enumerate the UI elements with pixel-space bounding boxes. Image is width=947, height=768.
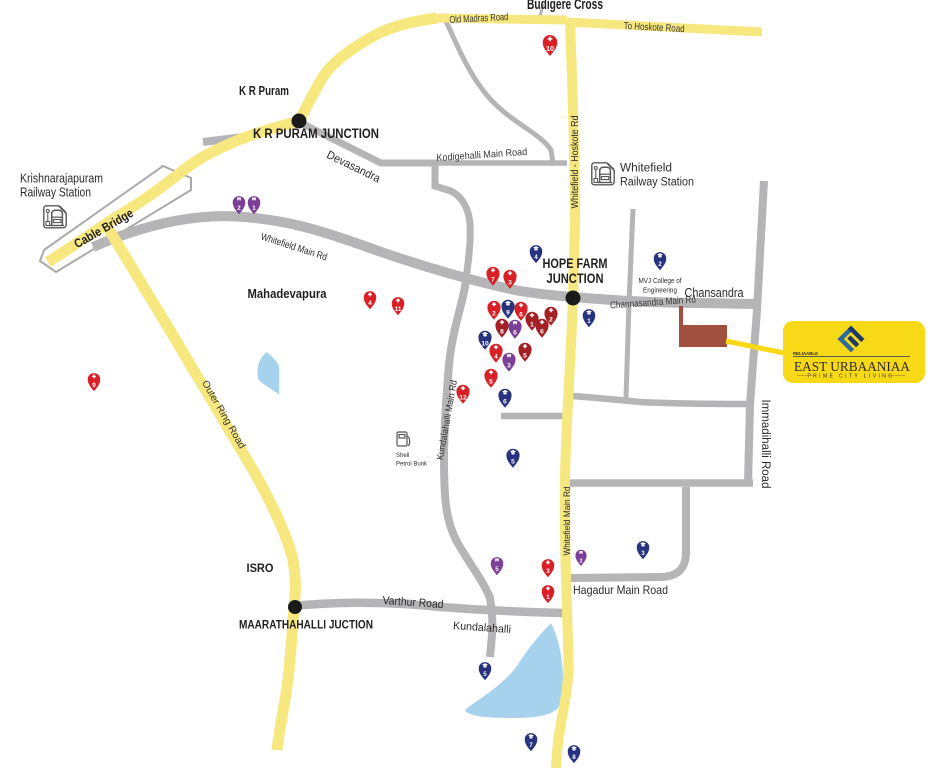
svg-text:3: 3: [546, 568, 550, 575]
svg-text:2: 2: [658, 261, 662, 268]
svg-text:5: 5: [483, 671, 487, 678]
svg-text:Engineering: Engineering: [643, 288, 677, 295]
svg-text:10: 10: [546, 44, 554, 53]
svg-text:4: 4: [534, 254, 538, 261]
svg-text:Petrol Bunk: Petrol Bunk: [396, 462, 428, 468]
svg-text:6: 6: [540, 328, 544, 335]
svg-text:3: 3: [507, 362, 511, 369]
svg-text:5: 5: [489, 378, 493, 385]
svg-text:6: 6: [503, 398, 507, 405]
svg-text:8: 8: [572, 754, 576, 761]
svg-text:6: 6: [519, 311, 523, 318]
svg-text:8: 8: [500, 328, 504, 335]
svg-text:Railway Station: Railway Station: [620, 177, 694, 189]
svg-text:9: 9: [506, 309, 510, 316]
svg-text:11: 11: [395, 306, 402, 313]
svg-text:RELIAABLE: RELIAABLE: [793, 351, 818, 356]
svg-text:K R PURAM JUNCTION: K R PURAM JUNCTION: [253, 126, 379, 141]
svg-text:PRIME CITY LIVING: PRIME CITY LIVING: [807, 374, 894, 380]
svg-text:2: 2: [492, 310, 496, 317]
svg-text:6: 6: [513, 329, 517, 336]
svg-text:5: 5: [511, 458, 515, 465]
svg-text:2: 2: [237, 205, 241, 212]
svg-text:Whitefield - Hoskote Rd: Whitefield - Hoskote Rd: [570, 116, 581, 209]
svg-text:Budigere Cross: Budigere Cross: [527, 0, 603, 13]
svg-text:7: 7: [491, 276, 495, 283]
svg-text:JUNCTION: JUNCTION: [547, 271, 604, 286]
svg-text:MAARATHAHALLI JUCTION: MAARATHAHALLI JUCTION: [239, 618, 373, 632]
svg-text:7: 7: [529, 742, 533, 749]
svg-text:Railway Station: Railway Station: [20, 186, 91, 200]
svg-text:1: 1: [587, 318, 591, 325]
svg-text:12: 12: [459, 394, 467, 401]
svg-text:Shell: Shell: [396, 453, 409, 459]
svg-text:5: 5: [495, 566, 499, 573]
svg-text:K R Puram: K R Puram: [239, 83, 289, 98]
svg-text:Whitefield Main Rd: Whitefield Main Rd: [562, 487, 572, 556]
svg-text:1: 1: [252, 205, 256, 212]
svg-text:Mahadevapura: Mahadevapura: [248, 287, 328, 301]
svg-text:3: 3: [641, 550, 645, 557]
svg-text:2: 2: [579, 558, 582, 564]
svg-text:9: 9: [92, 382, 96, 389]
svg-text:2: 2: [549, 316, 553, 323]
svg-text:10: 10: [481, 340, 489, 347]
svg-text:Immadihalli Road: Immadihalli Road: [759, 400, 771, 489]
svg-text:5: 5: [523, 352, 527, 359]
svg-text:ISRO: ISRO: [247, 561, 274, 575]
svg-text:HOPE FARM: HOPE FARM: [543, 256, 608, 271]
svg-text:Krishnarajapuram: Krishnarajapuram: [20, 172, 103, 186]
svg-text:Hagadur Main Road: Hagadur Main Road: [573, 583, 668, 597]
svg-text:1: 1: [530, 321, 534, 328]
svg-text:4: 4: [368, 300, 372, 307]
svg-text:Whitefield: Whitefield: [620, 163, 672, 175]
svg-text:1: 1: [546, 594, 550, 601]
svg-text:3: 3: [508, 279, 512, 286]
svg-text:4: 4: [494, 353, 498, 360]
svg-text:MVJ College of: MVJ College of: [639, 278, 682, 285]
